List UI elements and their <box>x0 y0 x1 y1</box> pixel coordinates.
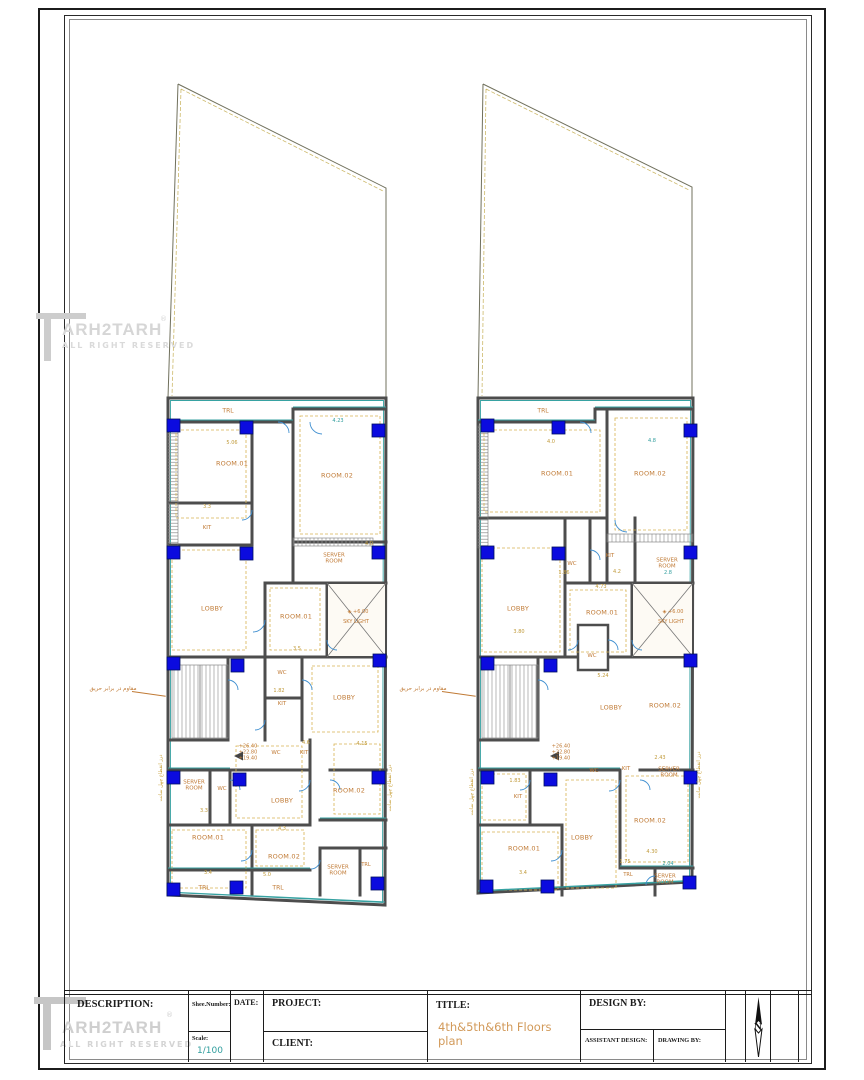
skylight <box>327 583 386 657</box>
floor-plan-left <box>160 80 395 910</box>
titleblock-sheetnumber-cell: Shee.Number: Scale: 1/100 <box>188 991 230 1062</box>
cell-divider <box>653 1029 654 1062</box>
titleblock-project-cell: PROJECT: CLIENT: <box>263 991 427 1062</box>
wall-hatch <box>607 534 693 542</box>
title-label: TITLE: <box>436 1000 470 1011</box>
date-label: DATE: <box>234 998 258 1007</box>
drawing-by-label: DRAWING BY: <box>658 1037 701 1044</box>
cell-divider <box>188 1031 230 1032</box>
stairs <box>172 665 228 738</box>
wall-hatch <box>293 538 373 546</box>
watermark-brand: ARH2TARH <box>62 320 162 340</box>
titleblock-spacer-cell <box>770 991 798 1062</box>
titleblock-description-cell: DESCRIPTION: <box>64 991 188 1062</box>
titleblock-spacer-cell <box>798 991 812 1062</box>
sheet-number-label: Shee.Number: <box>192 1001 231 1008</box>
wall-hatch <box>478 426 488 548</box>
lot-boundary <box>168 84 386 398</box>
titleblock-spacer-cell <box>725 991 745 1062</box>
titleblock-date-cell: DATE: <box>230 991 263 1062</box>
assistant-design-label: ASSISTANT DESIGN: <box>585 1037 647 1044</box>
wall-hatch <box>168 426 178 548</box>
sheet-title-value: 4th&5th&6th Floors plan <box>438 1020 580 1048</box>
drawing-sheet: ARH2TARH ® ALL RIGHT RESERVED ARH2TARH ®… <box>0 0 864 1080</box>
north-letter: N <box>754 1021 762 1033</box>
floor-plan-right <box>470 80 705 910</box>
wc-box <box>578 625 608 670</box>
client-label: CLIENT: <box>272 1038 313 1049</box>
design-by-label: DESIGN BY: <box>589 998 646 1009</box>
lot-boundary <box>478 84 692 398</box>
watermark-logo-stem <box>44 319 51 361</box>
skylight <box>632 583 693 657</box>
watermark-logo-stem <box>43 1004 51 1050</box>
scale-label: Scale: <box>192 1035 208 1042</box>
cell-divider <box>263 1031 427 1032</box>
project-label: PROJECT: <box>272 998 321 1009</box>
titleblock-north-cell: N <box>745 991 770 1062</box>
title-block: DESCRIPTION: Shee.Number: Scale: 1/100 D… <box>64 990 812 1061</box>
description-label: DESCRIPTION: <box>77 999 153 1010</box>
stairs <box>482 665 538 738</box>
titleblock-title-cell: TITLE: 4th&5th&6th Floors plan <box>427 991 580 1062</box>
scale-value: 1/100 <box>197 1046 223 1056</box>
